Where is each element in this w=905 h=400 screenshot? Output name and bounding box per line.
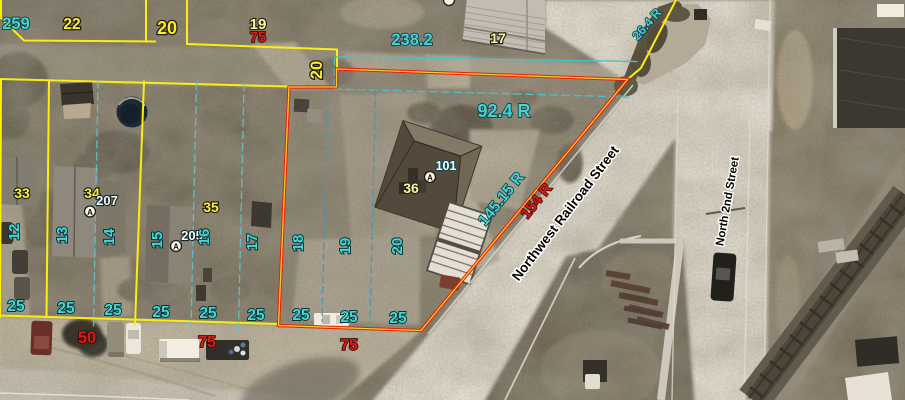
- svg-text:16: 16: [196, 229, 213, 246]
- svg-text:A: A: [87, 208, 93, 217]
- svg-text:25: 25: [152, 304, 170, 321]
- svg-text:15: 15: [149, 232, 166, 249]
- svg-text:17: 17: [490, 30, 506, 46]
- svg-text:25: 25: [292, 307, 310, 324]
- svg-text:20: 20: [308, 61, 326, 79]
- svg-text:238.2: 238.2: [391, 31, 432, 49]
- svg-text:20: 20: [157, 18, 177, 38]
- svg-text:75: 75: [250, 30, 266, 46]
- svg-text:13: 13: [54, 227, 71, 244]
- svg-text:14: 14: [101, 228, 118, 245]
- svg-text:259: 259: [2, 15, 30, 33]
- svg-text:25: 25: [247, 307, 265, 324]
- svg-text:12: 12: [6, 224, 23, 241]
- svg-text:75: 75: [198, 334, 216, 351]
- svg-text:25: 25: [104, 302, 122, 319]
- svg-text:92.4 R: 92.4 R: [477, 101, 530, 121]
- svg-text:A: A: [173, 243, 179, 252]
- svg-text:A: A: [427, 174, 433, 183]
- svg-text:33: 33: [14, 185, 30, 201]
- svg-text:25: 25: [57, 300, 75, 317]
- svg-text:207: 207: [96, 193, 118, 208]
- svg-text:50: 50: [78, 329, 96, 347]
- svg-text:25: 25: [7, 298, 25, 315]
- svg-text:25: 25: [389, 310, 407, 327]
- svg-text:17: 17: [244, 234, 261, 251]
- svg-text:25: 25: [340, 309, 358, 326]
- svg-text:75: 75: [340, 337, 358, 354]
- svg-text:25: 25: [199, 305, 217, 322]
- svg-text:22: 22: [63, 16, 80, 33]
- svg-text:101: 101: [436, 159, 457, 173]
- svg-text:18: 18: [290, 235, 307, 252]
- svg-text:20: 20: [389, 238, 406, 255]
- svg-text:36: 36: [403, 180, 419, 196]
- svg-text:19: 19: [337, 238, 354, 255]
- svg-text:35: 35: [203, 199, 219, 215]
